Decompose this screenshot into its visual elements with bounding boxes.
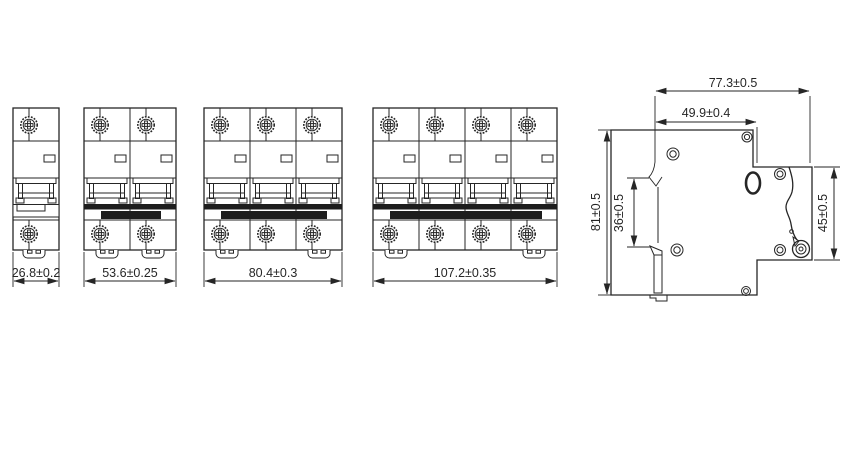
din-clip bbox=[523, 250, 545, 258]
oval-cutout-icon bbox=[746, 173, 760, 194]
width-dimension-label: 26.8±0.2 bbox=[12, 266, 61, 280]
overall-depth-label: 77.3±0.5 bbox=[709, 76, 758, 90]
rail-to-front-label: 49.9±0.4 bbox=[682, 106, 731, 120]
pole-module bbox=[511, 108, 557, 250]
handle-tie-bar bbox=[204, 204, 342, 210]
pole-module bbox=[84, 108, 130, 250]
dimension-overall-height: 81±0.5 bbox=[589, 130, 611, 295]
din-claw bbox=[649, 96, 662, 186]
front-section-label: 45±0.5 bbox=[816, 194, 830, 232]
handle-tie-bar bbox=[221, 211, 327, 219]
overall-height-label: 81±0.5 bbox=[589, 193, 603, 231]
front-view-3-pole: 80.4±0.3 bbox=[204, 108, 342, 287]
pole-module bbox=[419, 108, 465, 250]
clip-foot bbox=[650, 295, 667, 301]
dimension-rail-recess: 36±0.5 bbox=[612, 178, 650, 247]
din-clip bbox=[385, 250, 407, 258]
width-dimension-label: 53.6±0.25 bbox=[102, 266, 158, 280]
dimension-front-section: 45±0.5 bbox=[814, 167, 840, 260]
side-profile-outline bbox=[611, 130, 812, 295]
pole-module bbox=[13, 108, 59, 250]
din-clip bbox=[216, 250, 238, 258]
din-rail-recess bbox=[649, 96, 667, 301]
handle-tie-bar bbox=[84, 204, 176, 210]
din-clip bbox=[96, 250, 118, 258]
dimensional-drawing: 26.8±0.2 53.6±0.25 80.4±0.3 bbox=[0, 0, 858, 451]
din-slide-clip bbox=[654, 255, 662, 293]
rail-recess-label: 36±0.5 bbox=[612, 194, 626, 232]
handle-tie-bar bbox=[390, 211, 542, 219]
front-view-1-pole: 26.8±0.2 bbox=[12, 108, 61, 287]
width-dimension-label: 107.2±0.35 bbox=[434, 266, 497, 280]
pole-module bbox=[465, 108, 511, 250]
din-clip bbox=[308, 250, 330, 258]
width-dimension-label: 80.4±0.3 bbox=[249, 266, 298, 280]
din-clip bbox=[142, 250, 164, 258]
pole-module bbox=[130, 108, 176, 250]
handle-tie-bar bbox=[101, 211, 161, 219]
dimension-rail-to-front: 49.9±0.4 bbox=[656, 106, 757, 163]
drawing-canvas: 26.8±0.2 53.6±0.25 80.4±0.3 bbox=[0, 0, 858, 451]
clip-wedge bbox=[650, 246, 662, 255]
handle-tie-bar bbox=[373, 204, 557, 210]
pole-module bbox=[373, 108, 419, 250]
toggle-lever-icon bbox=[786, 167, 810, 258]
rivet-icons bbox=[667, 132, 786, 296]
pole-module bbox=[204, 108, 250, 250]
front-view-2-pole: 53.6±0.25 bbox=[84, 108, 176, 287]
front-view-4-pole: 107.2±0.35 bbox=[373, 108, 557, 287]
side-view: 77.3±0.5 49.9±0.4 81±0.5 36±0.5 45± bbox=[589, 76, 840, 301]
dimension-overall-depth: 77.3±0.5 bbox=[656, 76, 810, 163]
pole-module bbox=[296, 108, 342, 250]
pole-module bbox=[250, 108, 296, 250]
din-clip bbox=[23, 250, 45, 258]
